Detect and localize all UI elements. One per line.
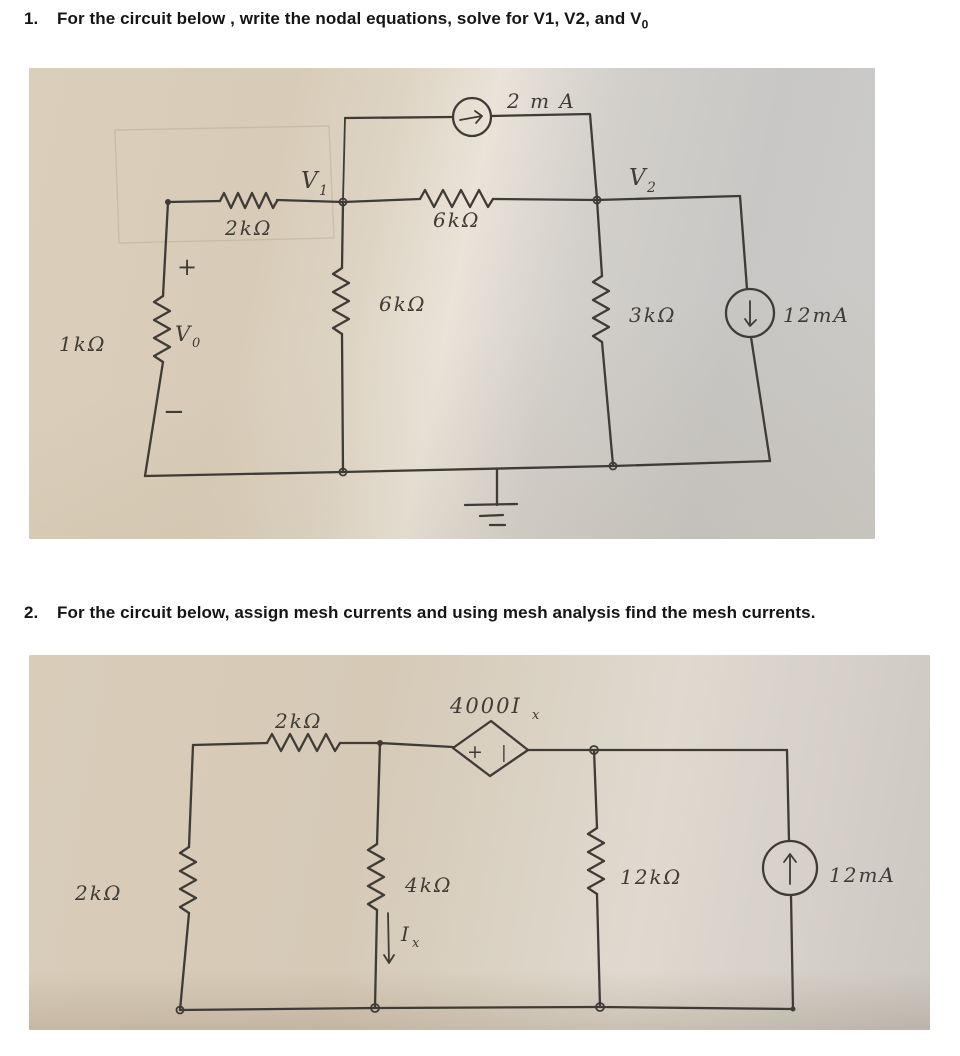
node-top-mid [377, 740, 383, 746]
label-v1-sub: 1 [319, 183, 328, 199]
label-r2k-left: 2kΩ [74, 881, 122, 905]
label-dep-plus: + [467, 741, 485, 763]
circuit-1-drawing: 2 m A V 1 V 2 2kΩ 6kΩ 6kΩ 3kΩ 12mA 1kΩ V… [29, 68, 875, 539]
label-v0: V [175, 322, 192, 346]
label-plus: + [177, 253, 199, 281]
wire-4k-upper [377, 743, 380, 844]
wire-12k-upper [594, 750, 597, 828]
label-r4k: 4kΩ [404, 873, 452, 897]
node-bottom-right [791, 1007, 796, 1012]
wire-mid-upper [342, 202, 343, 268]
label-r6k-horizontal: 6kΩ [433, 208, 480, 232]
resistor-6k-vertical-zigzag [333, 268, 349, 334]
wire-top-left [193, 743, 267, 745]
wire-mid-lower [342, 334, 343, 471]
wire-12ma-upper [740, 196, 747, 289]
problem-2-heading: 2. For the circuit below, assign mesh cu… [24, 603, 816, 623]
wire-left-upper [189, 745, 193, 847]
arrow-right-icon [460, 111, 482, 123]
label-r1k: 1kΩ [59, 332, 106, 356]
label-r2k-top: 2kΩ [274, 709, 322, 733]
problem-2-text: For the circuit below, assign mesh curre… [57, 603, 816, 623]
label-dep-source-sub: x [532, 708, 540, 723]
wire-v1-riser [343, 118, 345, 200]
dependent-source-diamond [453, 721, 528, 776]
problem-1-heading: 1. For the circuit below , write the nod… [24, 9, 648, 31]
wire-12ma-lower [791, 895, 793, 1009]
label-v2: V [629, 165, 648, 191]
resistor-6k-horizontal-zigzag [420, 190, 493, 207]
label-v0-sub: 0 [192, 336, 200, 351]
circuit-2-drawing: 2kΩ 4000I x + | 2kΩ 4kΩ I x 12kΩ 12mA [29, 655, 930, 1030]
worksheet-page: 1. For the circuit below , write the nod… [0, 0, 960, 1056]
resistor-1k-zigzag [154, 296, 170, 362]
wire-top-right [491, 114, 597, 199]
label-r12k: 12kΩ [620, 865, 682, 889]
arrow-ix-icon [384, 913, 394, 963]
label-dep-bar: | [501, 743, 509, 763]
label-12ma: 12mA [829, 863, 896, 887]
wire-12ma-upper [787, 750, 789, 841]
wire-12k-lower [597, 894, 600, 1007]
resistor-2k-zigzag [220, 193, 277, 208]
circuit-photo-2: 2kΩ 4000I x + | 2kΩ 4kΩ I x 12kΩ 12mA [29, 655, 930, 1030]
problem-1-text: For the circuit below , write the nodal … [57, 9, 648, 31]
wire-left-lower [145, 362, 163, 476]
wire-4k-lower [375, 910, 377, 1007]
label-v2-sub: 2 [646, 180, 656, 196]
problem-1-subscript: 0 [642, 17, 649, 31]
wire-rail-right [493, 199, 597, 200]
resistor-12k-zigzag [588, 828, 604, 894]
wire-3k-lower [602, 342, 613, 465]
wire-bottom-rail [180, 1007, 793, 1010]
wire-rail-mid [277, 200, 343, 202]
label-2ma: 2 m A [506, 89, 576, 113]
resistor-2k-left-zigzag [180, 847, 196, 913]
label-dep-source: 4000I [449, 694, 522, 718]
wire-top-left [345, 117, 453, 118]
wire-top-mid [340, 743, 453, 747]
resistor-3k-zigzag [593, 276, 609, 342]
node-dot [165, 199, 171, 205]
ground-icon [465, 504, 517, 525]
wire-12ma-lower [751, 337, 770, 461]
arrow-down-icon [745, 301, 756, 326]
problem-2-number: 2. [24, 603, 57, 623]
circuit-photo-1: 2 m A V 1 V 2 2kΩ 6kΩ 6kΩ 3kΩ 12mA 1kΩ V… [29, 68, 875, 539]
wire-rail-left [168, 201, 220, 202]
arrow-up-icon [784, 854, 796, 884]
label-minus: − [163, 397, 187, 427]
wire-bottom-rail [145, 461, 770, 476]
label-ix: I [400, 922, 411, 946]
wire-v2-to-corner [597, 196, 740, 200]
label-ix-sub: x [412, 936, 420, 951]
problem-1-number: 1. [24, 9, 57, 31]
label-12ma: 12mA [783, 303, 850, 327]
wire-left-upper [163, 202, 168, 296]
label-v1: V [301, 168, 320, 194]
label-r3k: 3kΩ [629, 303, 676, 327]
label-r2k: 2kΩ [224, 216, 272, 240]
wire-left-lower [180, 913, 189, 1010]
wire-3k-upper [597, 200, 602, 276]
resistor-4k-zigzag [368, 844, 384, 910]
resistor-2k-top-zigzag [267, 734, 340, 751]
wire-rail-mid2 [343, 199, 420, 202]
label-r6k-vertical: 6kΩ [379, 292, 426, 316]
